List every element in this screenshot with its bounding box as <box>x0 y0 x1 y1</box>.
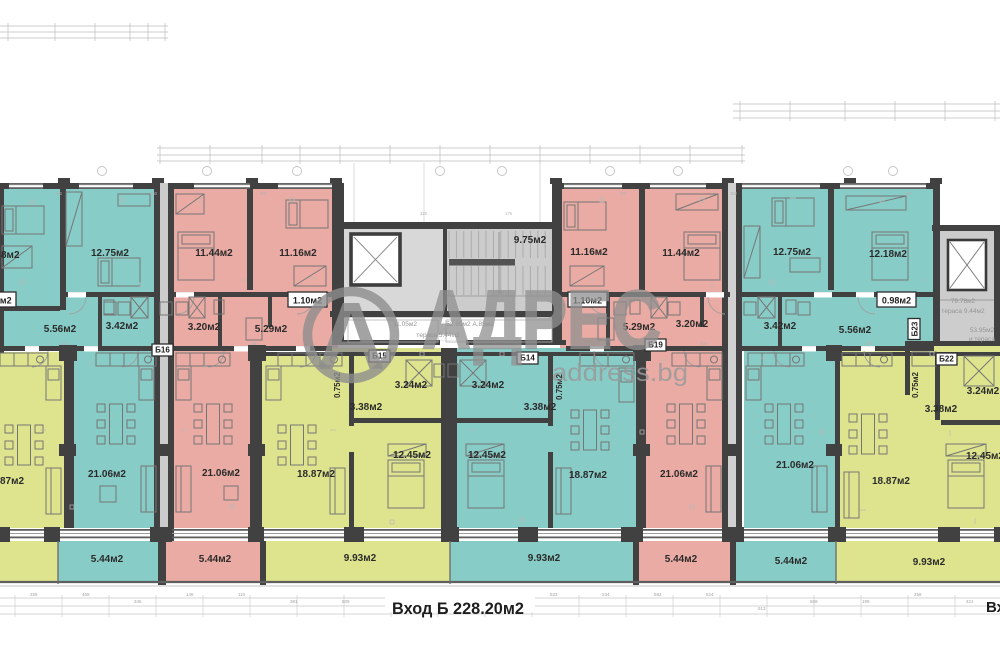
svg-text:address.bg: address.bg <box>552 359 688 387</box>
svg-text:АДРЕС: АДРЕС <box>422 273 661 366</box>
svg-text:А: А <box>316 283 385 390</box>
svg-text:Вход Б 228.20м2: Вход Б 228.20м2 <box>392 600 524 618</box>
svg-text:Вх: Вх <box>986 599 1000 616</box>
